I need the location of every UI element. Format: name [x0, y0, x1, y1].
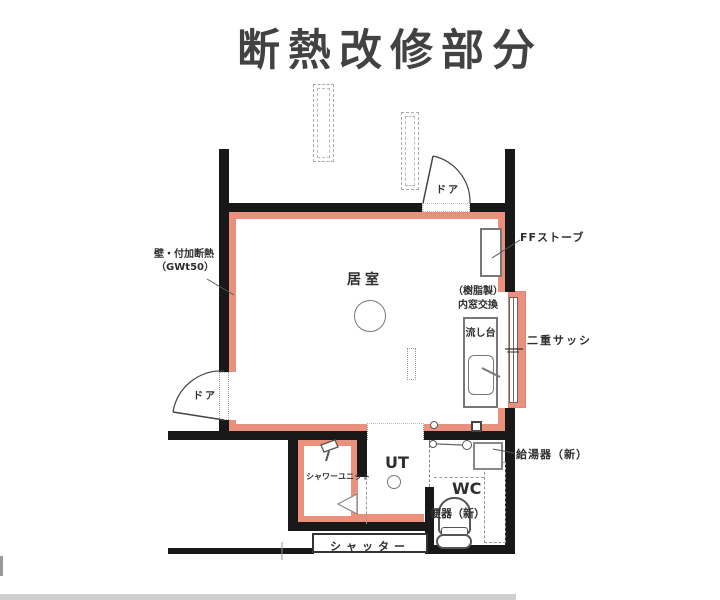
- shower-unit-label: シャワーユニット: [306, 471, 356, 482]
- dashed-element-2-inner: [405, 116, 415, 186]
- wall-top-left: [219, 203, 422, 212]
- water-heater-unit: [473, 442, 503, 470]
- plan-lines: [0, 0, 720, 600]
- toilet-base: [436, 534, 472, 549]
- living-room-label: 居室: [347, 269, 383, 289]
- bottom-edge-artifact: [0, 594, 516, 600]
- table-circle: [354, 300, 386, 332]
- wall-middle-left: [168, 431, 367, 440]
- insulation-bottom-left: [229, 424, 367, 431]
- door-top-label: ドア: [436, 181, 460, 196]
- insulation-right-lower: [498, 408, 505, 431]
- wall-insulation-line2: （GWt50）: [140, 261, 214, 274]
- left-edge-artifact: [0, 556, 3, 576]
- double-sash-label: 二重サッシ: [527, 332, 592, 348]
- water-heater-label: 給湯器（新）: [516, 446, 588, 462]
- window-sash-line: [513, 298, 514, 402]
- floor-plan-canvas: 断熱改修部分 流し台: [0, 0, 720, 600]
- wall-right-upper: [505, 149, 515, 292]
- shutter-box: シャッター: [312, 533, 428, 553]
- utility-label: UT: [385, 453, 409, 472]
- wc-dashed-divider: [434, 477, 484, 478]
- partition-dashed-utility: [366, 477, 367, 524]
- passage-opening-utility: [367, 423, 424, 440]
- shutter-label: シャッター: [314, 538, 426, 554]
- wc-label: WC: [452, 479, 481, 498]
- door-top-leaf: [423, 156, 433, 203]
- door-opening-left: [219, 372, 229, 420]
- wc-dashed-cabinet: [484, 462, 506, 543]
- wall-shower-left: [288, 438, 298, 530]
- pipe-line: [437, 444, 462, 445]
- meter-circle: [430, 421, 438, 429]
- inner-window-label: （樹脂製） 内窓交換: [450, 285, 506, 313]
- wall-shower-stub: [357, 431, 367, 477]
- dashed-element-1: [313, 84, 334, 162]
- utility-drain-circle: [387, 475, 401, 489]
- meter-square: [471, 421, 482, 432]
- wall-middle-right: [424, 431, 515, 440]
- inner-window-line2: 内窓交換: [450, 299, 506, 313]
- wall-bottom-thin: [168, 548, 314, 554]
- window-double-sash: [509, 297, 518, 403]
- pipe-circle-right: [462, 440, 472, 450]
- insulation-left: [229, 219, 236, 372]
- dashed-element-1-inner: [317, 88, 330, 158]
- pipe-circle-left: [429, 440, 437, 448]
- wall-left-upper: [219, 149, 229, 372]
- wall-right-lower: [505, 408, 515, 553]
- sink-label: 流し台: [465, 324, 496, 339]
- wall-insulation-label: 壁・付加断熱 （GWt50）: [140, 248, 214, 274]
- wall-insulation-line1: 壁・付加断熱: [140, 248, 214, 261]
- wall-shower-bottom: [288, 522, 434, 531]
- insulation-top: [229, 212, 505, 219]
- dashed-element-2: [401, 112, 419, 190]
- dotted-post: [407, 348, 416, 380]
- door-left-leaf: [173, 412, 224, 420]
- insulation-utility-bottom: [352, 514, 424, 522]
- door-left-label: ドア: [193, 387, 217, 402]
- ff-stove-label: FFストーブ: [520, 229, 584, 245]
- door-opening-top: [422, 203, 470, 212]
- toilet-label: 便器（新）: [430, 505, 485, 521]
- sink-counter: 流し台: [463, 317, 498, 408]
- page-title: 断熱改修部分: [30, 16, 720, 78]
- sink-basin: [468, 355, 494, 395]
- ff-stove-unit: [480, 228, 502, 277]
- inner-window-line1: （樹脂製）: [450, 285, 506, 299]
